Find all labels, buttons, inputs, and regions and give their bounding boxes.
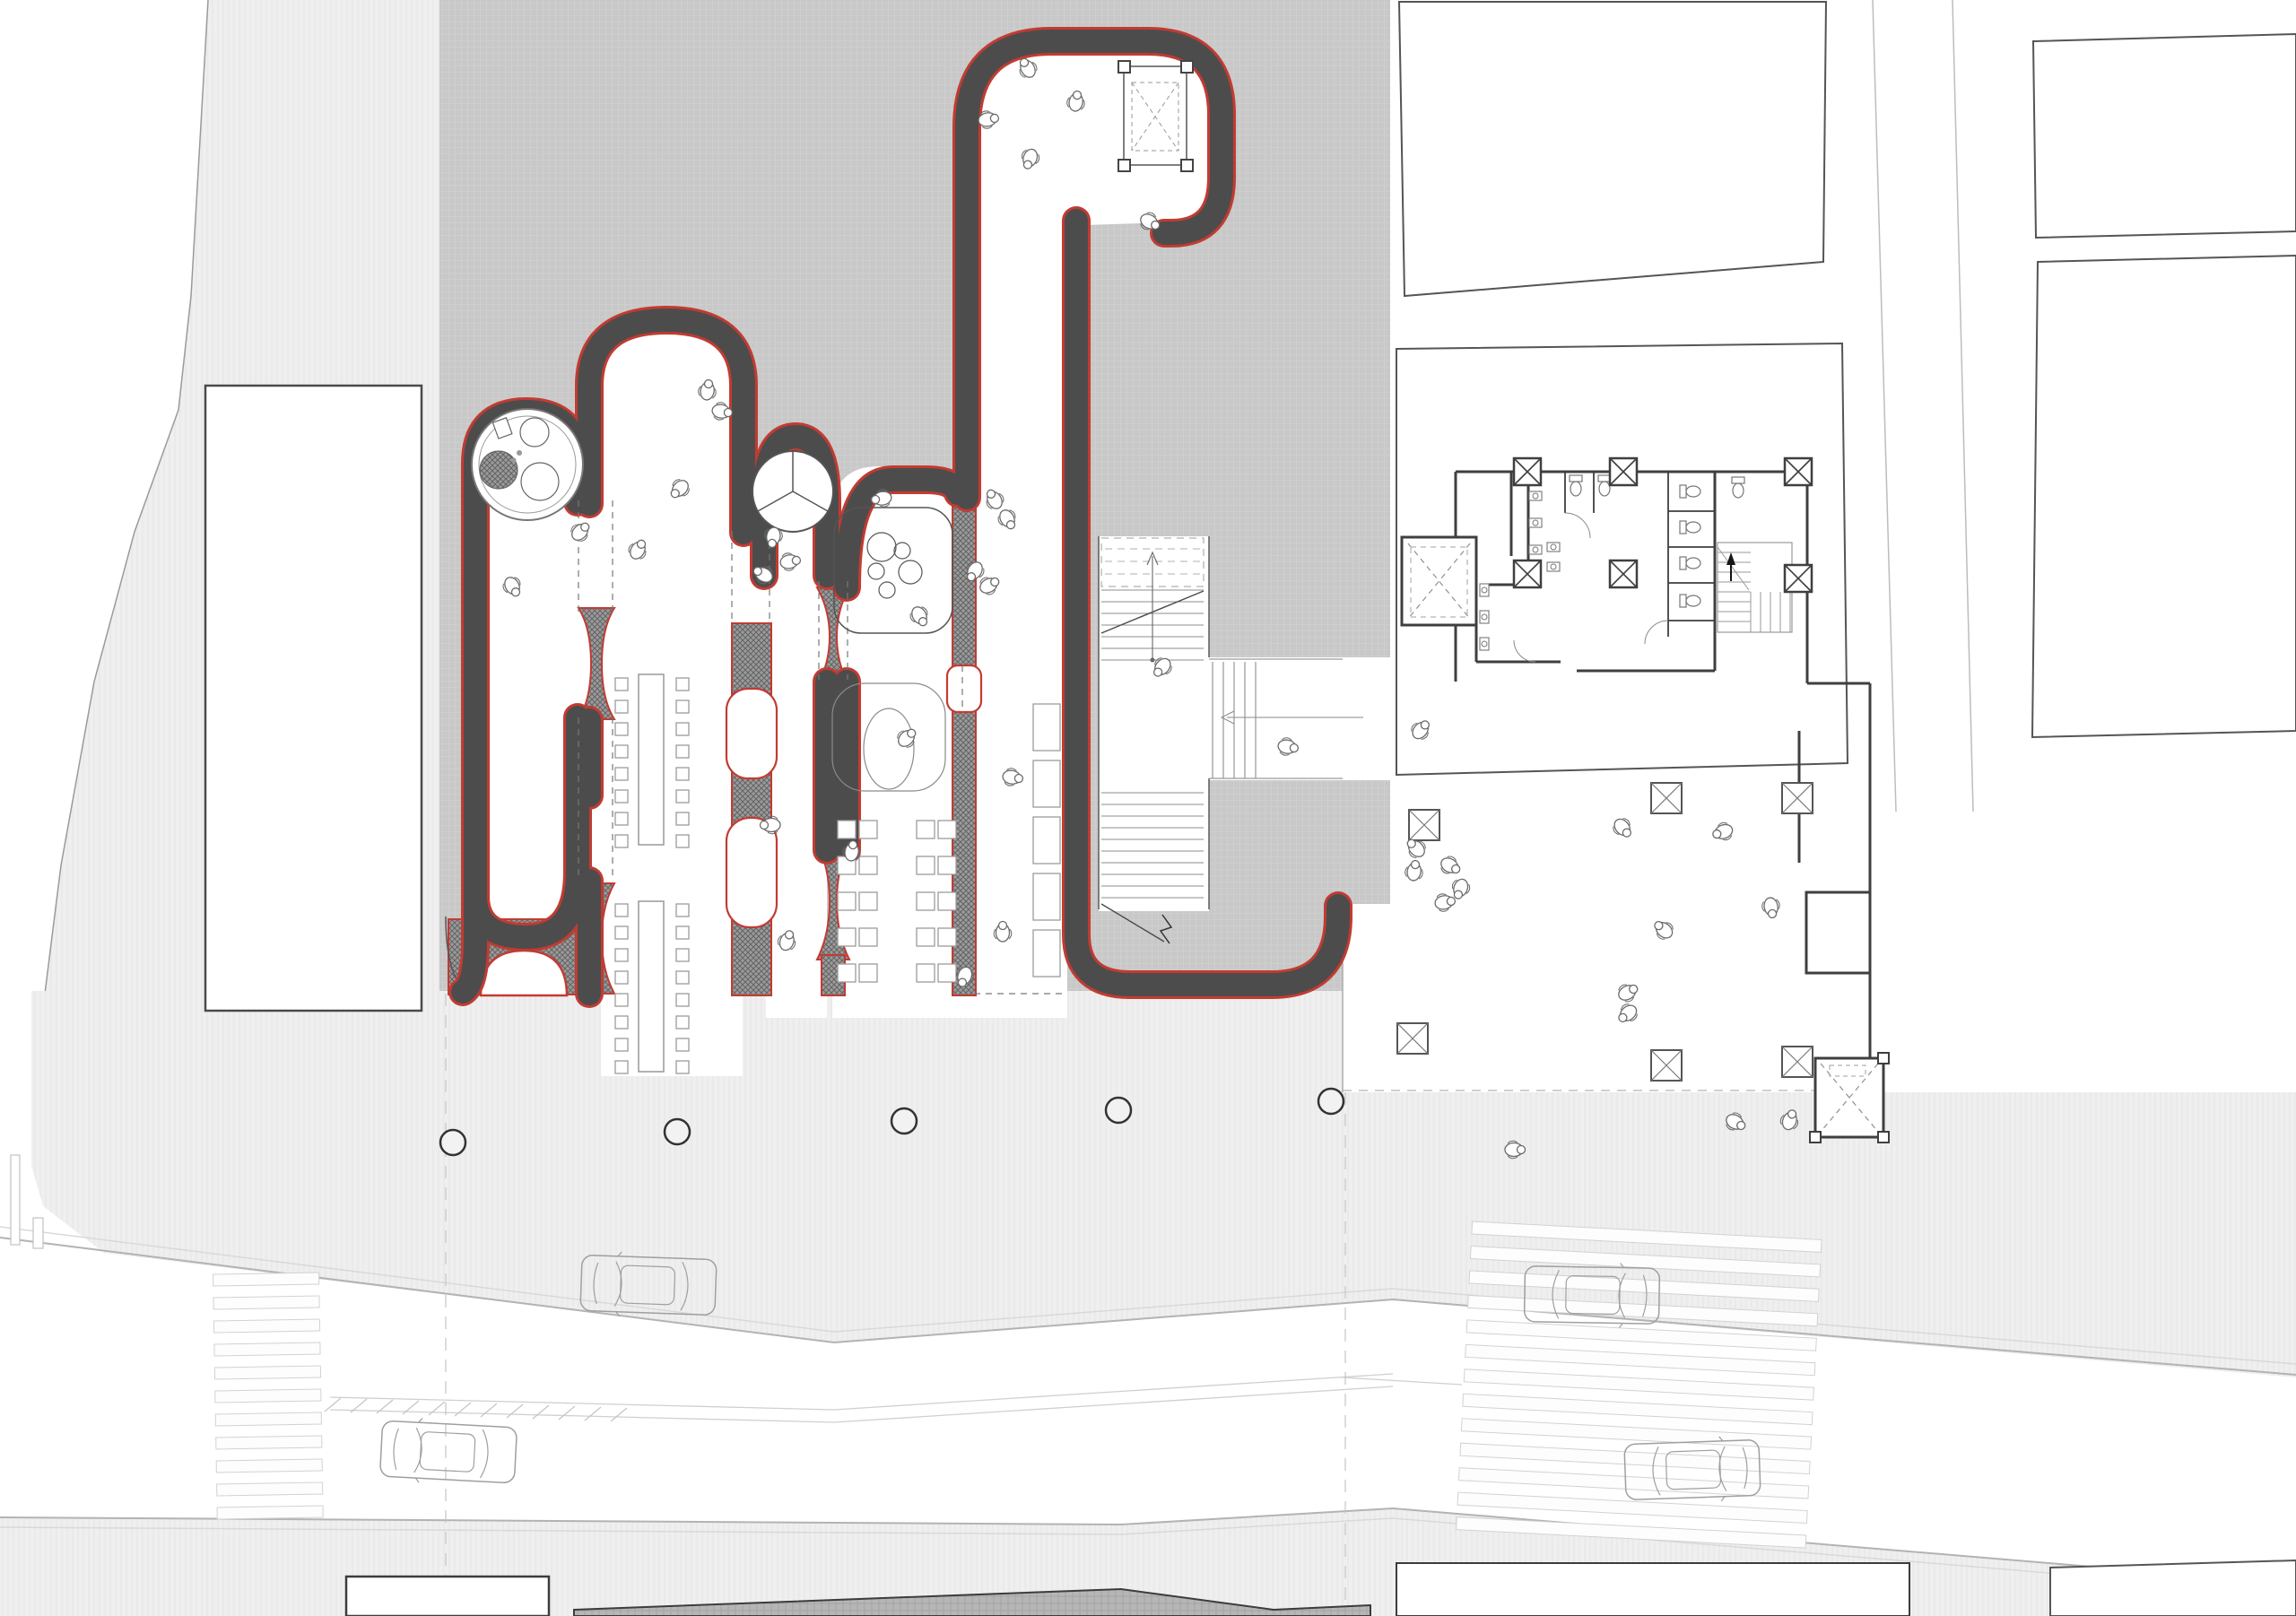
lobe2-table-2 [639, 901, 664, 1072]
plan-layers [0, 0, 2296, 1616]
opening-2b [726, 818, 777, 927]
stool [615, 700, 628, 713]
column-filled [1785, 458, 1812, 485]
stair-cut-vertical [1099, 536, 1209, 911]
crosswalk-stripe [214, 1366, 320, 1379]
stool [676, 812, 689, 825]
stool [676, 835, 689, 847]
block-south-white [1396, 1563, 1909, 1616]
crosswalk-stripe [1461, 1419, 1811, 1449]
column-filled [1785, 565, 1812, 592]
stool [938, 928, 956, 946]
stool [917, 964, 935, 982]
person-figure [1404, 859, 1424, 882]
stool [615, 949, 628, 961]
floor-plan-canvas [0, 0, 2296, 1616]
stool [859, 928, 877, 946]
stool [838, 964, 856, 982]
stool [676, 994, 689, 1006]
stool [938, 892, 956, 910]
block-ne-3 [2033, 34, 2296, 238]
plaza-column [1318, 1089, 1344, 1114]
stool [676, 723, 689, 735]
opening-4 [947, 665, 981, 712]
stool [676, 1016, 689, 1029]
crosswalk-stripe [215, 1412, 321, 1426]
elevator-b-post2 [1878, 1132, 1889, 1142]
block-se [2050, 1560, 2296, 1616]
sidewalk-main [31, 991, 2296, 1377]
crosswalk-stripe [213, 1273, 319, 1286]
crosswalk-stripe [1460, 1443, 1810, 1473]
crosswalk-stripe [1465, 1344, 1815, 1375]
site-plan-svg [0, 0, 2296, 1616]
sink-fixture [1529, 545, 1542, 554]
person-head [761, 821, 769, 830]
toilet-bowl [1686, 486, 1700, 497]
crosswalk-stripe [215, 1389, 321, 1403]
block-south-court [346, 1577, 549, 1616]
stool [838, 892, 856, 910]
stool [676, 790, 689, 803]
car-cabin [420, 1431, 475, 1472]
corridor-benches [1033, 704, 1060, 977]
column-filled [1610, 458, 1637, 485]
column-open [1409, 810, 1439, 840]
building-block-west [205, 386, 422, 1011]
elevator-b-post1 [1810, 1132, 1821, 1142]
stool [676, 904, 689, 917]
stool [676, 926, 689, 939]
stool [615, 768, 628, 780]
stool [1033, 760, 1060, 807]
toilet-bowl [1570, 482, 1581, 496]
planter-dot-1 [517, 450, 522, 456]
stool [676, 678, 689, 691]
column-open [1651, 1050, 1682, 1081]
stool [938, 856, 956, 874]
rb-u-channel [1806, 892, 1870, 973]
hook-post-2 [1181, 61, 1193, 73]
band-2 [732, 623, 771, 995]
planter-dot-2 [512, 458, 517, 463]
stool [615, 926, 628, 939]
stool [676, 1061, 689, 1073]
toilet-bowl [1733, 483, 1744, 498]
toilet-fixture [1680, 521, 1700, 534]
stool [676, 768, 689, 780]
stool [917, 856, 935, 874]
sink-fixture [1529, 491, 1542, 500]
curb-tick-1 [11, 1155, 20, 1245]
person-head [999, 922, 1007, 930]
person-figure [1438, 854, 1464, 879]
stool [838, 928, 856, 946]
stool [676, 949, 689, 961]
planter-table-1 [520, 418, 549, 447]
stool [859, 856, 877, 874]
toilet-bowl [1686, 522, 1700, 533]
elevator-a [1402, 537, 1476, 625]
lane-line-b [330, 1386, 1393, 1422]
sink-fixture [1480, 638, 1489, 650]
stool [1033, 704, 1060, 751]
opening-2a [726, 689, 777, 778]
plaza-column [665, 1119, 690, 1144]
stool [615, 994, 628, 1006]
toilet-tank [1680, 521, 1686, 534]
car-body [379, 1421, 517, 1483]
column-open [1397, 1023, 1428, 1054]
stool [615, 1016, 628, 1029]
crosswalk-left [213, 1273, 324, 1519]
lane-line-right [1343, 1377, 1462, 1385]
sink-fixture [1529, 518, 1542, 527]
column-open [1782, 783, 1813, 813]
band-4 [952, 484, 976, 995]
planter-table-2 [521, 463, 559, 500]
stool [615, 1061, 628, 1073]
stool [1033, 817, 1060, 864]
sink-fixture [1547, 543, 1560, 552]
block-east [2032, 256, 2296, 737]
stool [917, 892, 935, 910]
stool [938, 964, 956, 982]
stool [615, 971, 628, 984]
stool [676, 1038, 689, 1051]
stool [615, 678, 628, 691]
column-filled [1514, 560, 1541, 587]
crosswalk-stripe [1463, 1394, 1813, 1424]
person-figure [1615, 979, 1641, 1004]
person-figure [1614, 1001, 1641, 1027]
toilet-tank [1680, 595, 1686, 607]
stool [615, 812, 628, 825]
crosswalk-stripe [216, 1459, 322, 1473]
stair-arrow1-dot [1151, 658, 1155, 663]
stool [615, 790, 628, 803]
stool [1033, 930, 1060, 977]
hook-interior [974, 52, 1211, 229]
stool [859, 821, 877, 838]
toilet-tank [1680, 557, 1686, 569]
person-figure [1710, 821, 1735, 844]
sink-fixture [1547, 562, 1560, 571]
stool [917, 821, 935, 838]
median-hatch [325, 1398, 627, 1421]
crosswalk-stripe [213, 1319, 319, 1333]
toilet-fixture [1732, 477, 1744, 498]
hook-post-1 [1118, 61, 1130, 73]
car [379, 1416, 517, 1488]
toilet-bowl [1686, 595, 1700, 606]
street-ne-edge2 [1952, 0, 1973, 812]
column-open [1651, 783, 1682, 813]
curb-tick-2 [33, 1218, 43, 1248]
person-head [1518, 1146, 1526, 1154]
stool [676, 700, 689, 713]
stool [615, 745, 628, 758]
stool [676, 745, 689, 758]
column-filled [1610, 560, 1637, 587]
crosswalk-stripe [216, 1436, 322, 1449]
toilet-tank [1732, 477, 1744, 483]
planter-tree [480, 451, 517, 489]
person-figure [1610, 815, 1636, 842]
lane-line-a [330, 1374, 1393, 1410]
column-filled [1514, 458, 1541, 485]
stool [615, 904, 628, 917]
toilet-tank [1680, 485, 1686, 498]
stool [676, 971, 689, 984]
plaza-column [440, 1130, 465, 1155]
person-figure [1433, 892, 1457, 913]
street-ne-edge1 [1873, 0, 1896, 812]
hook-post-3 [1118, 160, 1130, 171]
toilet-bowl [1599, 482, 1610, 496]
toilet-fixture [1680, 595, 1700, 607]
stool [1033, 873, 1060, 920]
plaza-column [891, 1108, 917, 1134]
crosswalk-stripe [213, 1296, 319, 1309]
toilet-tank [1570, 475, 1582, 482]
column-open [1782, 1047, 1813, 1077]
stool [917, 928, 935, 946]
hook-post-4 [1181, 160, 1193, 171]
stool [838, 821, 856, 838]
stool [615, 1038, 628, 1051]
sink-fixture [1480, 584, 1489, 596]
person-figure [1761, 896, 1781, 919]
plaza-column [1106, 1098, 1131, 1123]
stool [615, 835, 628, 847]
toilet-bowl [1686, 558, 1700, 569]
lobe2-table-1 [639, 674, 664, 845]
crosswalk-stripe [217, 1482, 323, 1496]
crosswalk-stripe [1464, 1369, 1813, 1400]
person-figure [1650, 917, 1677, 943]
stool [859, 892, 877, 910]
toilet-fixture [1680, 485, 1700, 498]
elevator-b-post3 [1878, 1053, 1889, 1064]
stool [938, 821, 956, 838]
crosswalk-stripe [217, 1506, 323, 1519]
toilet-fixture [1680, 557, 1700, 569]
toilet-fixture [1570, 475, 1582, 496]
crosswalk-stripe [214, 1342, 320, 1356]
stool [615, 723, 628, 735]
stool [859, 964, 877, 982]
sink-fixture [1480, 611, 1489, 623]
block-ne-1 [1399, 2, 1826, 296]
stair-cut-horizontal [1206, 657, 1399, 780]
